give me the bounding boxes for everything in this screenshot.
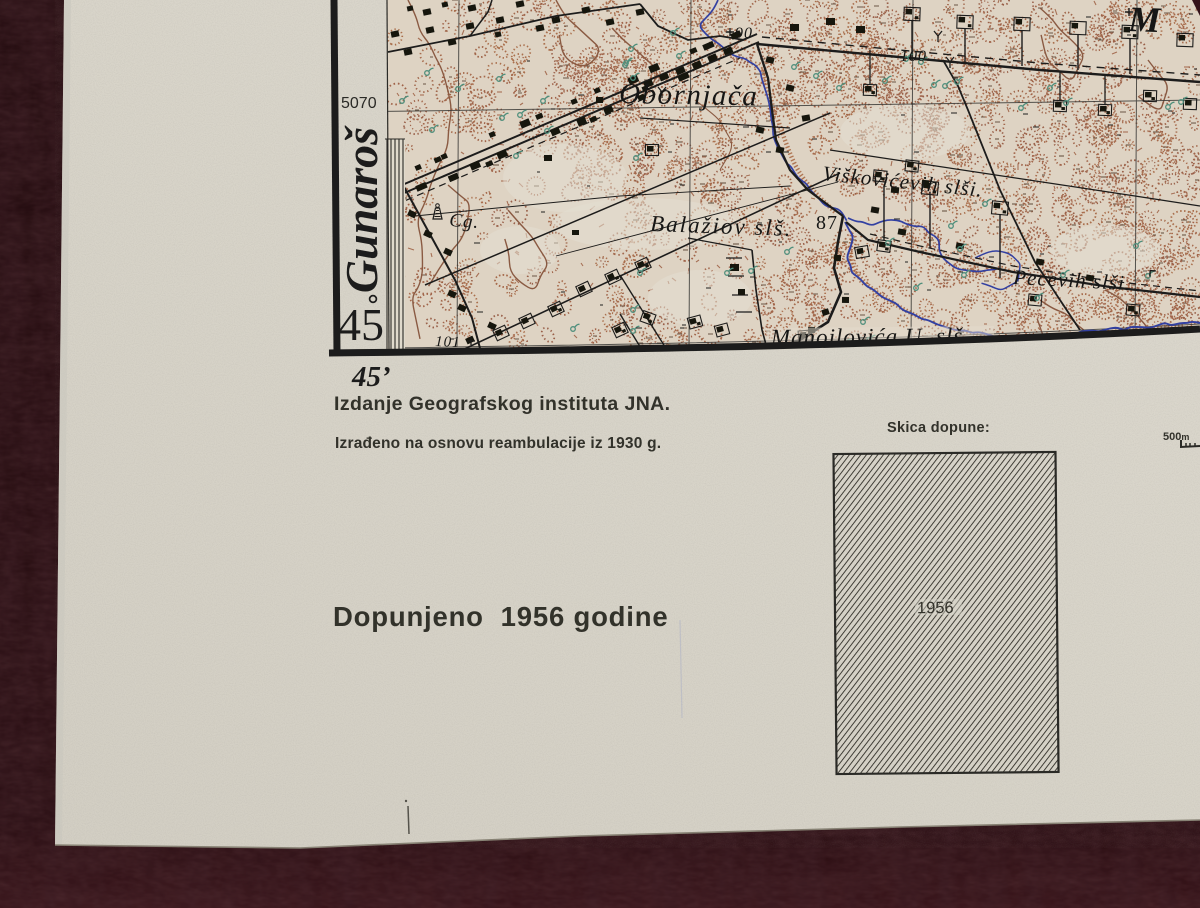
svg-text:100: 100 xyxy=(900,48,927,65)
svg-text:Izrađeno na osnovu reambulacij: Izrađeno na osnovu reambulacije iz 1930 … xyxy=(335,435,661,452)
svg-text:1956: 1956 xyxy=(917,599,954,617)
svg-text:⌜: ⌜ xyxy=(1147,268,1159,291)
svg-text:M: M xyxy=(1127,0,1163,40)
svg-text:45: 45 xyxy=(338,299,384,350)
svg-text:Balažiov slš.: Balažiov slš. xyxy=(650,211,793,241)
svg-text:Gunaroš: Gunaroš xyxy=(336,125,387,293)
svg-text:45’: 45’ xyxy=(351,361,391,393)
svg-text:Obornjača: Obornjača xyxy=(619,78,759,112)
svg-text:90: 90 xyxy=(735,25,753,42)
svg-text:Skica dopune:: Skica dopune: xyxy=(887,420,990,436)
svg-text:5070: 5070 xyxy=(341,95,377,112)
svg-text:Izdanje Geografskog instituta: Izdanje Geografskog instituta JNA. xyxy=(334,393,670,415)
svg-text:500m: 500m xyxy=(1163,431,1189,443)
svg-text:87: 87 xyxy=(816,212,838,234)
svg-text:Dopunjeno 1956 godine: Dopunjeno 1956 godine xyxy=(333,601,668,632)
svg-text:Cg.: Cg. xyxy=(449,210,480,233)
